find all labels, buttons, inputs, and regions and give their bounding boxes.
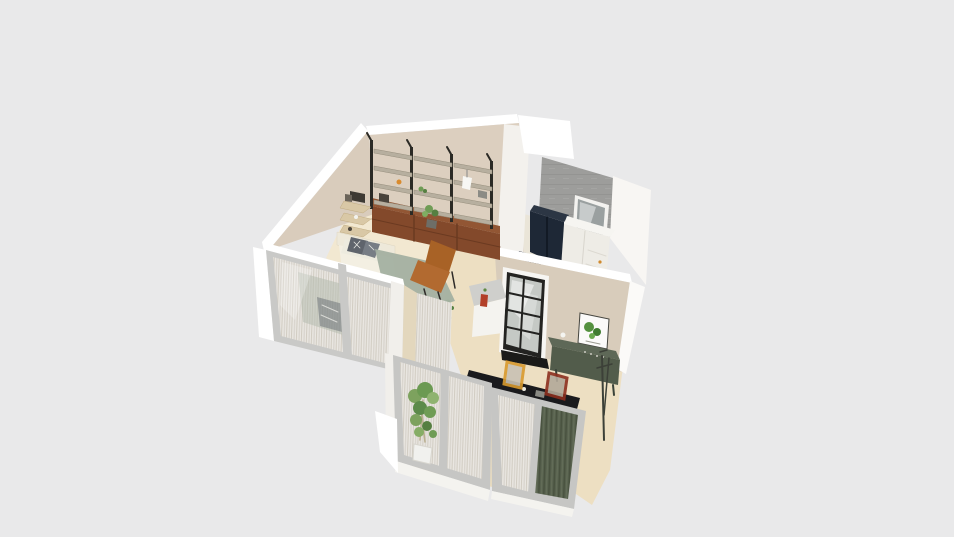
- balcony-plant-leaf-7[interactable]: [422, 421, 432, 431]
- table-white-dish[interactable]: [522, 387, 526, 391]
- shelf-decor-orange-vase[interactable]: [397, 180, 402, 185]
- sideboard-handle-2[interactable]: [590, 353, 592, 355]
- balcony-plant-pot[interactable]: [413, 444, 432, 464]
- balcony-plant-leaf-6[interactable]: [410, 414, 422, 426]
- cabinet-item-orange[interactable]: [598, 260, 601, 263]
- sideboard-handle-1[interactable]: [584, 351, 586, 353]
- balcony-plant-leaf-3[interactable]: [427, 392, 439, 404]
- cabinet-plant-leaf-3[interactable]: [422, 211, 428, 217]
- wall-kitchen-north-white: [518, 115, 574, 159]
- floorplan-3d-render[interactable]: [0, 0, 954, 537]
- cabinet-plant-leaf-2[interactable]: [432, 210, 439, 217]
- picture-frame-red[interactable]: [546, 373, 567, 399]
- red-vase[interactable]: [480, 294, 488, 307]
- corner-shelf-dark-vase[interactable]: [348, 227, 352, 231]
- balcony-plant-leaf-5[interactable]: [424, 406, 436, 418]
- botanical-print-leaf-3: [589, 333, 595, 339]
- red-vase-sprout: [483, 288, 486, 291]
- sideboard-mug[interactable]: [561, 333, 566, 338]
- sideboard-leg-right[interactable]: [613, 385, 614, 395]
- botanical-print-leaf-1: [584, 322, 594, 332]
- shelf-post-1[interactable]: [370, 140, 373, 209]
- sideboard-handle-3[interactable]: [596, 355, 598, 357]
- floorplan-3d-viewport[interactable]: Isometric 3D dollhouse render of a small…: [0, 0, 954, 537]
- picture-frame-orange[interactable]: [504, 362, 524, 388]
- shelf-plant-leaf-2[interactable]: [423, 189, 427, 193]
- shelf-plant-leaf-1[interactable]: [419, 187, 424, 192]
- balcony-plant-leaf-9[interactable]: [429, 430, 437, 438]
- corner-shelf-small-frame[interactable]: [345, 194, 352, 202]
- corner-shelf-white-cup[interactable]: [354, 215, 358, 219]
- balcony-plant-leaf-8[interactable]: [414, 427, 424, 437]
